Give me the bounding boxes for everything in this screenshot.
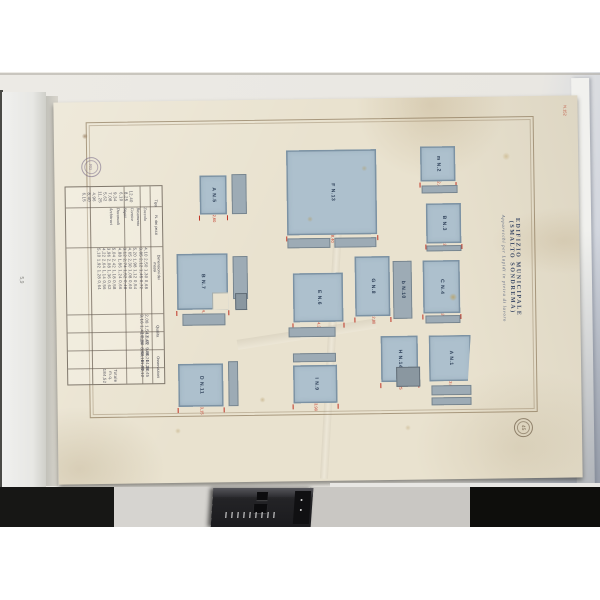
shelf-segment [0, 487, 114, 527]
photo-of-archival-drawing: { "title": { "line1": "EDIFIZIO MUNICIPA… [0, 0, 600, 600]
table-band: 4,10 2,50 1,30 0,68 3,85 2,12 1,45 0,72 … [68, 247, 149, 312]
plan-figure [425, 315, 460, 323]
plan-figure: C N.4 [423, 260, 461, 314]
red-tick-icon [176, 311, 177, 316]
red-tick-icon [460, 314, 461, 319]
shelf-segment [310, 487, 470, 527]
dimension-text: 2,80 [357, 317, 388, 323]
plan-figure [287, 238, 330, 249]
figure-label: A N.1 [429, 335, 472, 382]
plan-figure [431, 385, 471, 396]
indicator-dots-icon [300, 509, 302, 511]
shelf-segment [114, 487, 214, 527]
figure-label: B N.7 [176, 253, 228, 310]
shelf-segment [470, 487, 600, 527]
ruler-scale-icon [225, 512, 279, 518]
plan-figure [396, 367, 420, 387]
foxing-spot [361, 165, 367, 171]
red-tick-icon [377, 235, 378, 240]
red-tick-icon [422, 315, 423, 320]
plan-figure [231, 174, 247, 214]
plan-figure [182, 313, 225, 326]
figure-label: b N.10 [393, 261, 413, 319]
red-tick-icon [420, 183, 421, 188]
red-tick-icon [343, 323, 344, 328]
stamp-text: 45 [517, 421, 530, 434]
plan-figure: B N.3 [426, 203, 462, 243]
figure-label: B N.3 [426, 203, 462, 243]
drawing-title: EDIFIZIO MUNICIPALE (SMALTO SONDREMA) [509, 200, 521, 334]
backdrop-left-strip [2, 92, 46, 488]
figure-label: G N.8 [355, 256, 391, 316]
red-tick-icon [227, 215, 228, 220]
red-tick-icon [390, 317, 391, 322]
red-tick-icon [224, 407, 225, 412]
figure-label: I N.9 [293, 365, 338, 404]
plan-figure: B N.7 [176, 253, 228, 310]
dimension-text: 3,90 [296, 404, 336, 411]
dimension-text: 3,15 [181, 407, 222, 414]
measuring-device [211, 488, 314, 527]
foxing-spot [175, 428, 181, 434]
quantities-table: TipoN. dei pezziDimensioni dei massiQual… [65, 185, 166, 385]
plan-figure [422, 185, 458, 194]
plan-figure [432, 397, 472, 406]
red-tick-icon [338, 404, 339, 409]
figure-label: E N.6 [293, 273, 344, 323]
plan-figure: m N.2 [420, 146, 455, 181]
plan-figure: I N.9 [293, 365, 338, 404]
plan-figure: A N.1 [429, 335, 472, 382]
figure-label: D N.11 [178, 363, 224, 407]
figure-label: m N.2 [420, 146, 455, 181]
plan-figure [334, 237, 376, 248]
foxing-spot [82, 133, 88, 139]
red-tick-icon [461, 244, 462, 249]
figure-label: A N.5 [199, 175, 227, 214]
table-band: Totale m.q. 184,52 [70, 368, 150, 383]
red-tick-icon [178, 408, 179, 413]
foxing-spot [259, 397, 265, 403]
backdrop-edge-line [0, 73, 600, 75]
plan-figure [289, 327, 336, 338]
table-header-label: Qualita [152, 316, 162, 346]
foxing-spot [502, 152, 510, 160]
figure-label: C N.4 [423, 260, 461, 314]
corner-number-note: N.152 [561, 103, 567, 117]
red-tick-icon [199, 216, 200, 221]
red-tick-icon [293, 404, 294, 409]
pencil-note: 5,9 [16, 272, 24, 288]
table-band: Zoccolo Basamento Cornice Stipiti Davanz… [92, 207, 149, 246]
table-band: 12,45 9,80 14,20 10,36 8,64 11,72 [70, 332, 150, 349]
table-band: 2,08 1,54 0,92 3,16 1,42 0,84 [93, 314, 149, 331]
foxing-spot [405, 425, 411, 431]
table-header-label: N. dei pezzi [151, 210, 161, 240]
plan-figure: G N.8 [355, 256, 391, 316]
figure-label: F N.13 [286, 149, 377, 235]
table-band: 48,20 36,45 52,18 40,12 [94, 350, 150, 367]
plan-figure: E N.6 [293, 273, 344, 323]
plan-figure [426, 245, 461, 251]
red-tick-icon [380, 383, 381, 388]
archive-stamp-icon: 45 [514, 418, 533, 437]
device-side-panel [293, 491, 311, 524]
foxing-spot [307, 216, 313, 222]
drawing-subtitle: Apparecchi per Lapidi in pietra di lavor… [499, 208, 509, 328]
table-header-label: Osservazioni [153, 352, 163, 382]
table-header-label: Dimensioni dei massi [151, 252, 161, 282]
stamp-text: RG [84, 160, 98, 174]
photo-scene: 5,9 EDIFIZIO MUNICIPALE (SMALTO SONDREMA… [0, 72, 600, 527]
indicator-dots-icon [300, 499, 302, 501]
plan-figure: F N.13 [286, 149, 377, 235]
plan-figure [228, 361, 239, 406]
plan-figure: D N.11 [178, 363, 224, 407]
dimension-text: 2,60 [202, 215, 225, 221]
table-band: 12,40 8,25 6,10 9,34 7,08 5,62 11,25 4,9… [68, 187, 148, 206]
plan-figure: A N.5 [199, 175, 227, 214]
foxing-spot [449, 293, 457, 301]
red-tick-icon [228, 310, 229, 315]
knob-icon [257, 492, 269, 500]
plan-figure [293, 353, 336, 363]
red-tick-icon [354, 317, 355, 322]
drawing-sheet: EDIFIZIO MUNICIPALE (SMALTO SONDREMA) Ap… [53, 95, 582, 484]
plan-figure [235, 293, 247, 310]
plan-figure: b N.10 [393, 261, 413, 319]
